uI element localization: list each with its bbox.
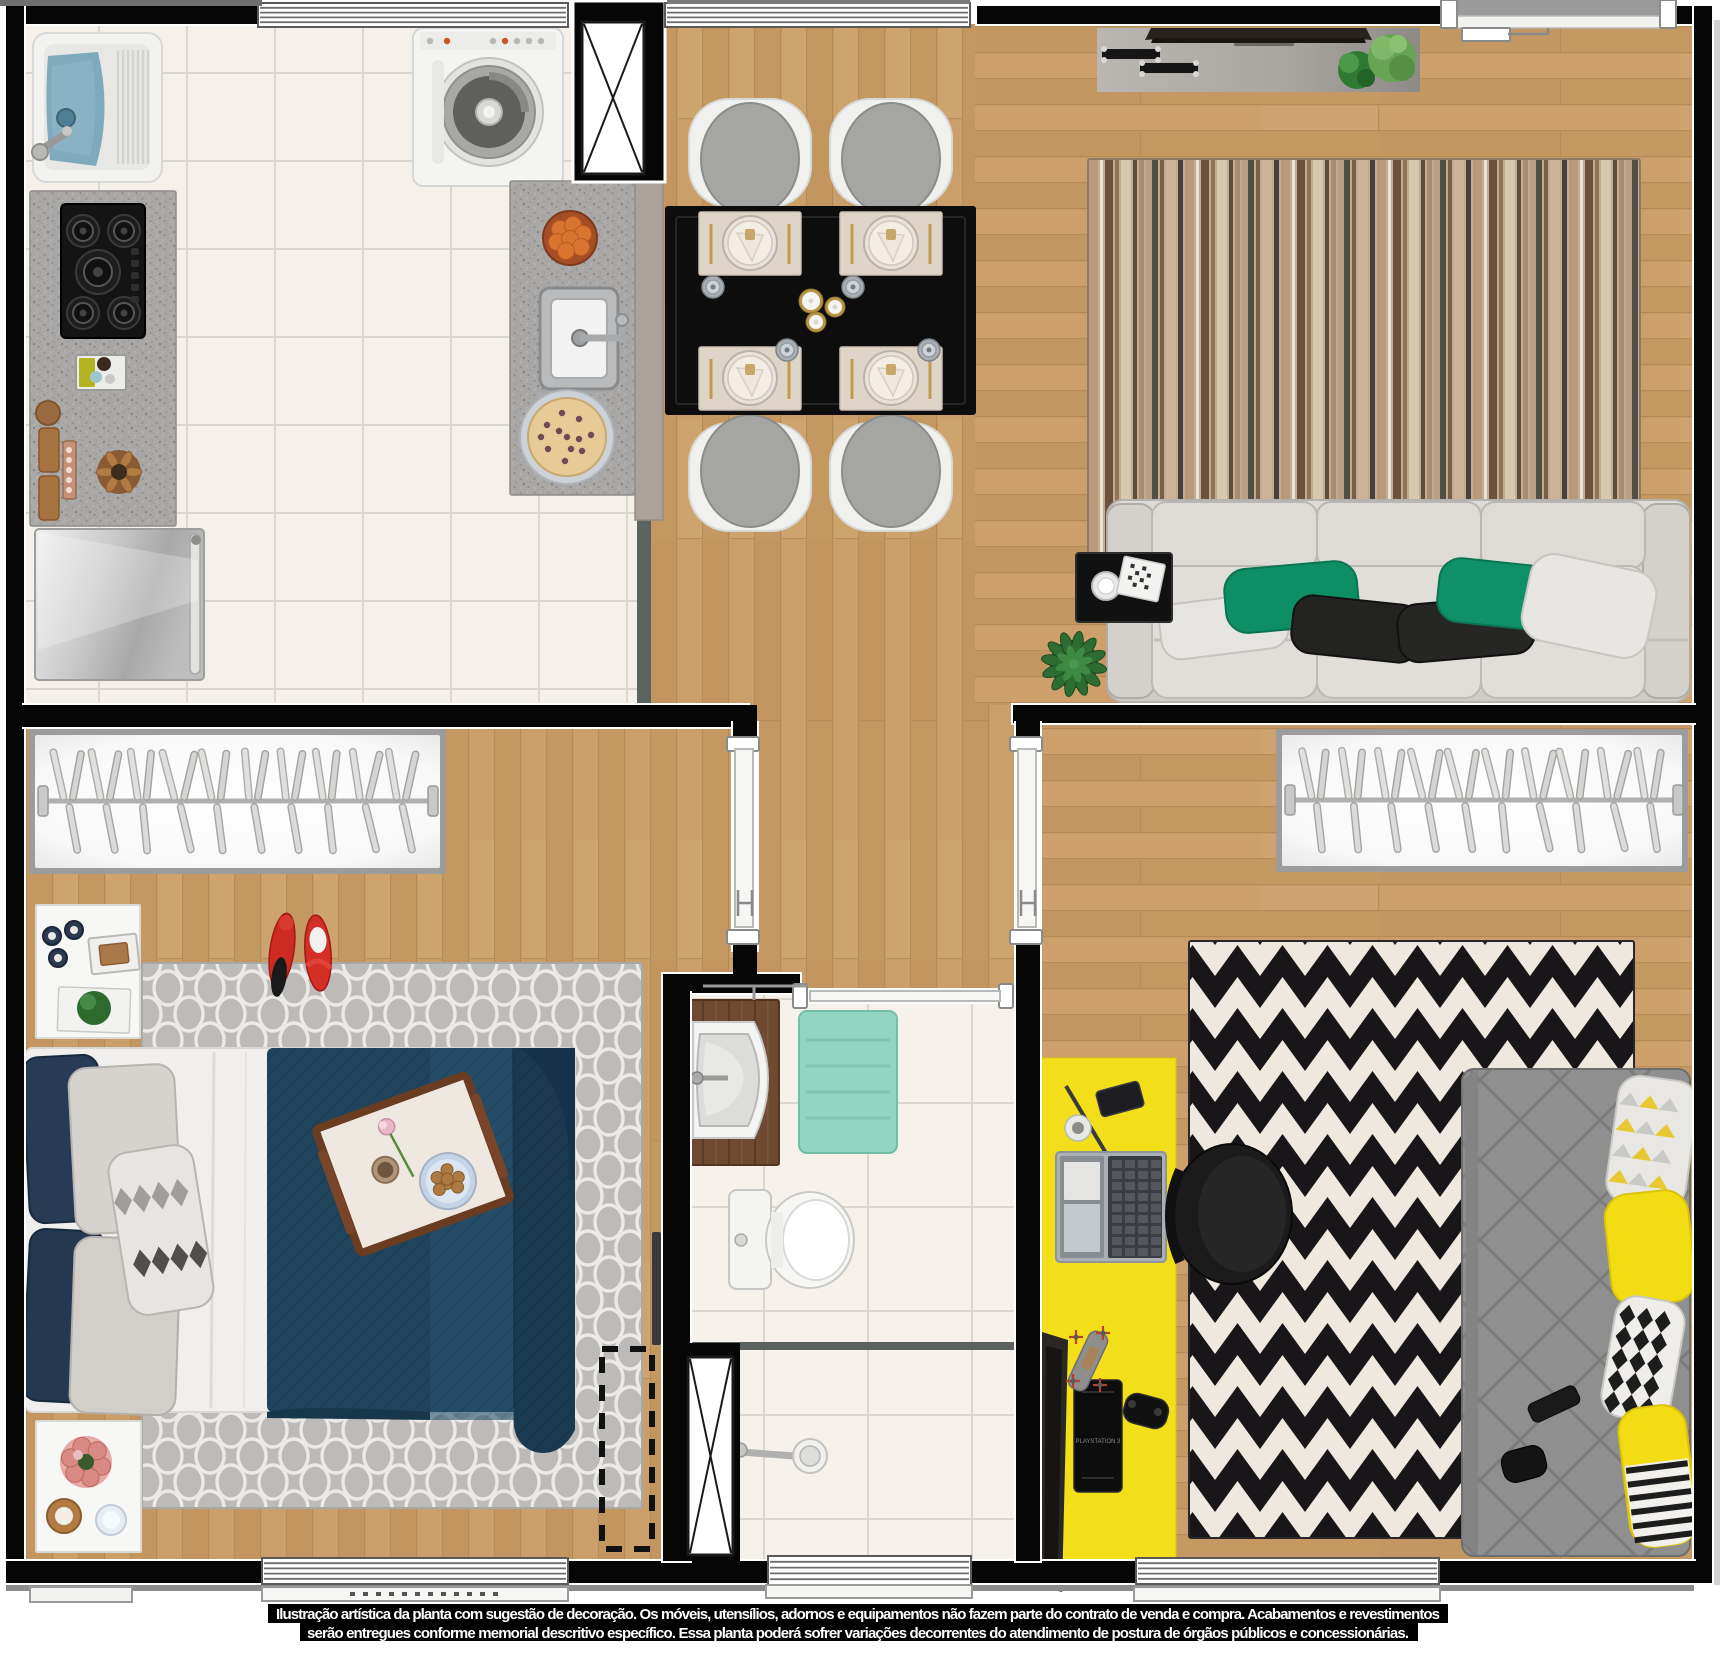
svg-text:PLAYSTATION 3: PLAYSTATION 3 (1075, 1439, 1121, 1445)
svg-text:serão entregues conforme memor: serão entregues conforme memorial descri… (307, 1625, 1409, 1642)
svg-text:Ilustração artística da planta: Ilustração artística da planta com suges… (276, 1606, 1440, 1623)
